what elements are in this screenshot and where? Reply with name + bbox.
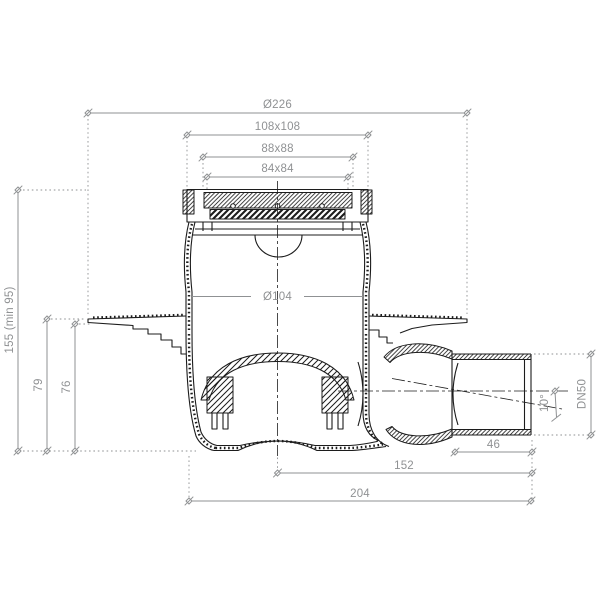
- lower-body: [186, 332, 389, 451]
- technical-drawing-canvas: Ø226 108x108 88x88 84x84 Ø104 155 (min 9…: [0, 0, 603, 604]
- label-length-152: 152: [394, 460, 414, 472]
- label-length-204: 204: [350, 488, 370, 500]
- floor-drain-section-drawing: Ø226 108x108 88x88 84x84 Ø104 155 (min 9…: [0, 0, 603, 604]
- seal-block-right: [322, 377, 348, 413]
- dimension-labels: Ø226 108x108 88x88 84x84 Ø104 155 (min 9…: [4, 99, 589, 500]
- label-frame-inner: 88x88: [261, 143, 293, 155]
- label-height-79: 79: [33, 378, 45, 391]
- dim-angle: [552, 391, 562, 422]
- drain-geometry: [88, 190, 531, 451]
- label-frame-outer: 108x108: [255, 121, 301, 133]
- extension-lines: [23, 119, 592, 499]
- frame-clip-left: [183, 190, 194, 214]
- ball-joint-bottom: [386, 427, 452, 445]
- outlet-tilted-centerline: [392, 379, 562, 410]
- outlet-pipe: [358, 344, 531, 445]
- label-grate: 84x84: [261, 163, 294, 175]
- label-total-height: 155 (min 95): [4, 287, 16, 354]
- seal-block-left: [207, 377, 233, 413]
- label-outlet-size: DN50: [577, 379, 589, 409]
- label-length-46: 46: [487, 439, 500, 451]
- ball-joint-top: [384, 344, 452, 363]
- label-height-76: 76: [61, 380, 73, 393]
- inner-dome-arc: [255, 235, 302, 257]
- label-body-diameter: Ø104: [263, 291, 292, 303]
- label-outlet-angle: 10°: [539, 394, 551, 412]
- label-flange-diameter: Ø226: [263, 99, 292, 111]
- frame-clip-right: [361, 190, 372, 214]
